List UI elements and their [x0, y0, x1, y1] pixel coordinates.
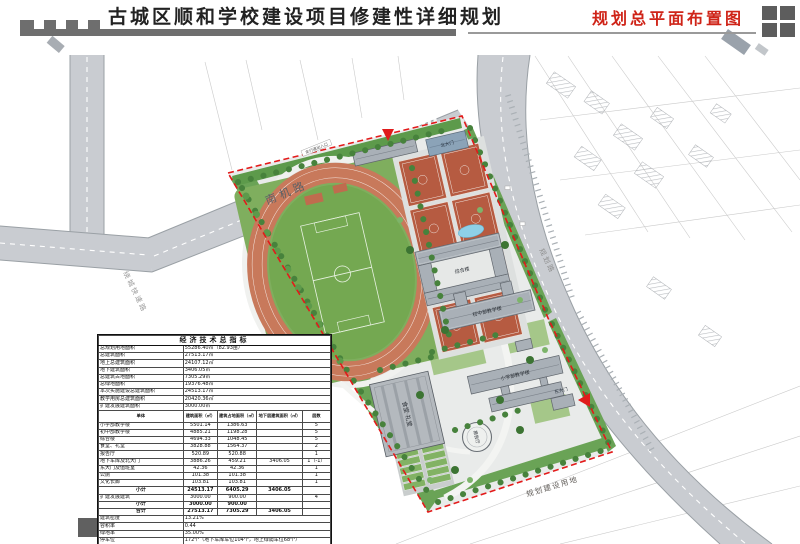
deco-square-footer [78, 518, 97, 537]
building-rows: 小学部教学楼 5501.14 1386.63 5 初中部教学楼 4885.21 … [99, 422, 331, 487]
deco-square [88, 20, 100, 29]
deco-square [780, 6, 795, 20]
metric-rows: 建筑密度 13.21% 容积率 0.44 绿地率 35.00% 停车位 172个… [99, 516, 331, 544]
page-title: 古城区顺和学校建设项目修建性详细规划 [108, 2, 504, 29]
table-row: 容积率 0.44 [99, 523, 331, 530]
total-row: 合计27513.17 7305.293406.05 [99, 508, 331, 515]
table-row: 地上总建筑面积 24107.12㎡ [99, 360, 331, 367]
table-row: 地下车库及北大门 3886.26 459.21 3406.05 1（-1） [99, 458, 331, 465]
existing-buildings-hatch [546, 72, 731, 347]
table-row: 小学部教学楼 5501.14 1386.63 5 [99, 422, 331, 429]
table-row: 扩建发展建筑3000.00 900.00 4 [99, 494, 331, 501]
column-header-row: 单体 建筑面积（㎡） 建筑占地面积（㎡） 地下层建筑面积（㎡） 层数 [99, 410, 331, 422]
drawing-sheet: 南机路 绕城快速路 规划路 规划建设用地 车行道出入口 北大门 综合楼 初中部教… [0, 0, 800, 544]
table-row: 文化长廊 103.81 103.81 1 [99, 480, 331, 487]
title-underline-bar [20, 29, 456, 36]
subtotal-row: 小计24513.17 6405.293406.05 [99, 487, 331, 494]
table-row: 总规划用地面积 55286.40㎡（82.93亩） [99, 346, 331, 353]
table-row: 初中部教学楼 4885.21 1198.28 5 [99, 429, 331, 436]
deco-square [780, 23, 795, 37]
subtotal-row: 小计3000.00 900.00 [99, 501, 331, 508]
table-title: 经济技术总指标 [99, 336, 331, 346]
table-row: 总建筑占地面积 7305.29㎡ [99, 374, 331, 381]
deco-square [20, 20, 34, 29]
table-row: 东大门及值班室 42.36 42.36 1 [99, 465, 331, 472]
table-row: 扩建发展建筑面积 3000.00㎡ [99, 403, 331, 410]
deco-square [44, 20, 56, 29]
road-label-ring: 绕城快速路 [121, 270, 149, 314]
indicator-table: 经济技术总指标 总规划用地面积 55286.40㎡（82.93亩） 总建筑面积 … [97, 334, 332, 544]
right-title-rule [468, 32, 756, 34]
table-row: 报告厅 520.89 520.88 1 [99, 451, 331, 458]
table-row: 停车位 172个（地下车库车位104个，地上绿荫车位68个） [99, 537, 331, 544]
table-row: 本次实施建设总建筑面积 24513.17㎡ [99, 389, 331, 396]
table-row: 总绿地面积 19376.48㎡ [99, 381, 331, 388]
drawing-title: 规划总平面布置图 [592, 5, 744, 29]
table-row: 公厕 101.38 101.38 1 [99, 473, 331, 480]
table-row: 总建筑面积 27513.17㎡ [99, 353, 331, 360]
table-row: 教学用房总建筑面积 20420.36㎡ [99, 396, 331, 403]
table-row: 绿地率 35.00% [99, 530, 331, 537]
deco-square [762, 6, 777, 20]
deco-square [66, 20, 78, 29]
table-row: 综合楼 4694.33 1048.45 5 [99, 437, 331, 444]
summary-rows: 总规划用地面积 55286.40㎡（82.93亩） 总建筑面积 27513.17… [99, 346, 331, 411]
table-row: 地下建筑面积 3406.05㎡ [99, 367, 331, 374]
table-row: 建筑密度 13.21% [99, 516, 331, 523]
deco-square [762, 23, 777, 37]
table-row: 食堂、礼堂 3828.88 1564.37 2 [99, 444, 331, 451]
